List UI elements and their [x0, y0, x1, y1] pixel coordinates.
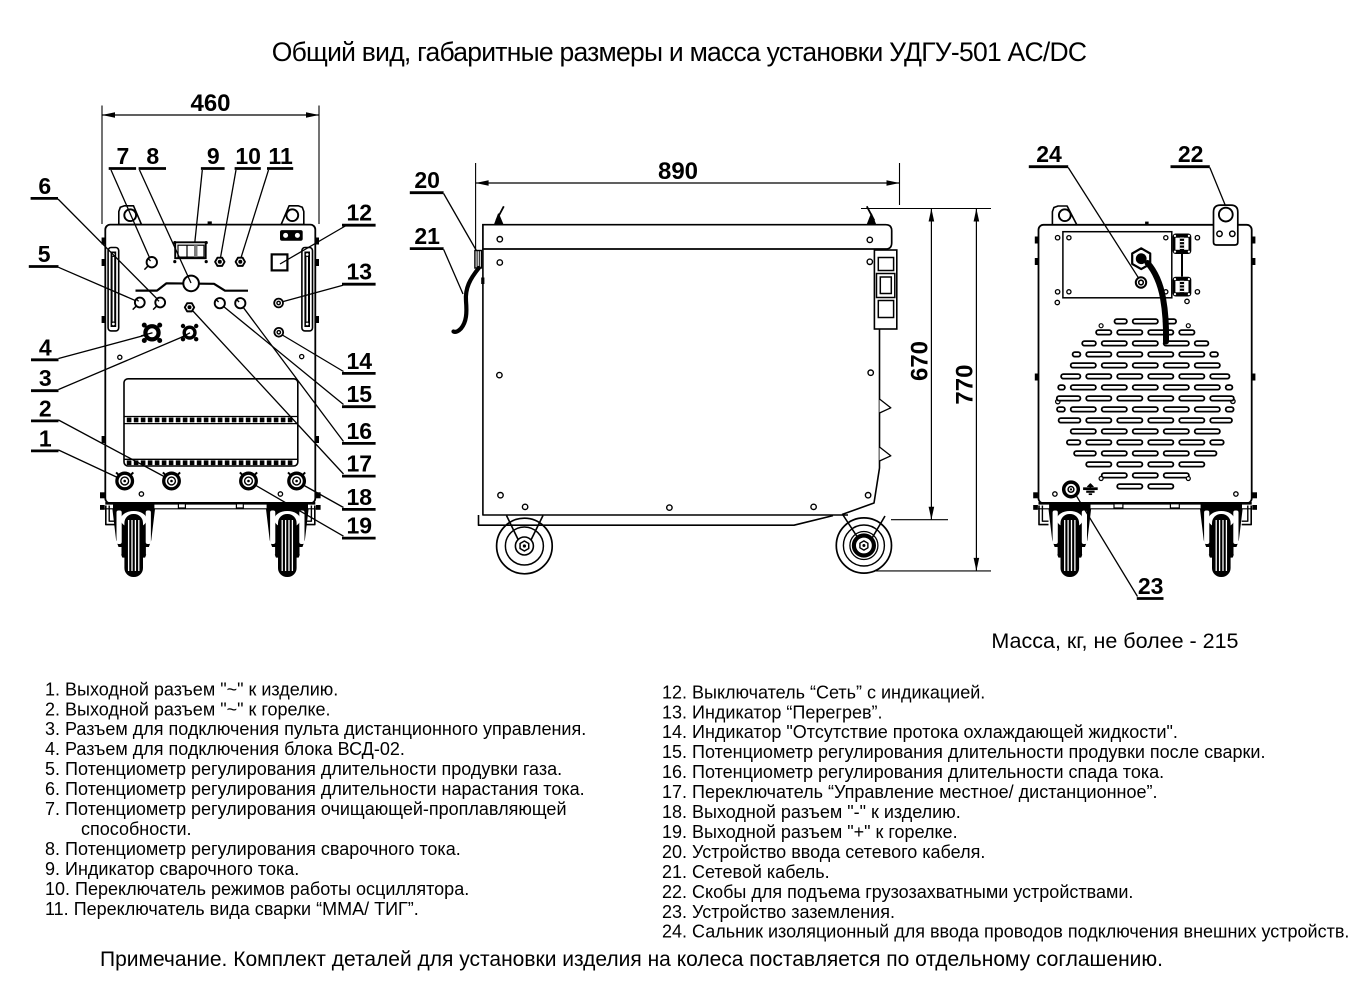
svg-text:16: 16: [347, 418, 373, 444]
svg-text:12: 12: [347, 200, 373, 226]
svg-text:16. Потенциометр регулирования: 16. Потенциометр регулирования длительно…: [662, 762, 1164, 782]
svg-text:способности.: способности.: [81, 819, 192, 839]
svg-text:20. Устройство ввода сетевого: 20. Устройство ввода сетевого кабеля.: [662, 842, 985, 862]
svg-text:12. Выключатель “Сеть” с индик: 12. Выключатель “Сеть” с индикацией.: [662, 682, 985, 702]
svg-text:5. Потенциометр регулирования: 5. Потенциометр регулирования длительнос…: [45, 759, 562, 779]
svg-text:8. Потенциометр регулирования: 8. Потенциометр регулирования сварочного…: [45, 839, 461, 859]
svg-text:1. Выходной разъем "~" к издел: 1. Выходной разъем "~" к изделию.: [45, 679, 338, 699]
svg-text:3. Разъем для подключения пуль: 3. Разъем для подключения пульта дистанц…: [45, 719, 586, 739]
svg-text:13: 13: [347, 259, 373, 285]
svg-text:10: 10: [235, 143, 261, 169]
svg-text:Примечание. Комплект деталей д: Примечание. Комплект деталей для установ…: [100, 948, 1163, 971]
svg-text:21. Сетевой кабель.: 21. Сетевой кабель.: [662, 862, 830, 882]
svg-text:15: 15: [347, 381, 373, 407]
svg-text:20: 20: [414, 167, 440, 193]
svg-text:5: 5: [38, 241, 51, 267]
svg-text:Общий вид, габаритные размеры: Общий вид, габаритные размеры и масса ус…: [272, 37, 1087, 67]
svg-text:670: 670: [907, 341, 934, 381]
svg-text:8: 8: [146, 143, 159, 169]
svg-text:2. Выходной разъем "~" к горел: 2. Выходной разъем "~" к горелке.: [45, 699, 331, 719]
svg-text:6: 6: [38, 173, 51, 199]
svg-text:24. Сальник изоляционный для в: 24. Сальник изоляционный для ввода прово…: [662, 922, 1349, 942]
svg-text:11. Переключатель вида сварки: 11. Переключатель вида сварки “ММА/ ТИГ”…: [45, 899, 419, 919]
svg-text:17: 17: [347, 451, 373, 477]
svg-text:2: 2: [39, 395, 52, 421]
svg-text:19: 19: [347, 513, 373, 539]
svg-text:3: 3: [39, 365, 52, 391]
svg-text:4. Разъем для подключения блок: 4. Разъем для подключения блока ВСД-02.: [45, 739, 405, 759]
svg-text:23. Устройство заземления.: 23. Устройство заземления.: [662, 902, 895, 922]
svg-text:1: 1: [39, 425, 52, 451]
svg-text:15. Потенциометр регулирования: 15. Потенциометр регулирования длительно…: [662, 742, 1265, 762]
svg-text:9. Индикатор сварочного тока.: 9. Индикатор сварочного тока.: [45, 859, 299, 879]
svg-text:9: 9: [207, 143, 220, 169]
svg-text:22: 22: [1178, 141, 1204, 167]
svg-text:4: 4: [39, 334, 52, 360]
svg-text:Масса, кг, не более - 215: Масса, кг, не более - 215: [991, 629, 1238, 653]
svg-text:770: 770: [952, 365, 979, 405]
svg-text:23: 23: [1138, 573, 1164, 599]
svg-text:14: 14: [347, 348, 373, 374]
svg-text:24: 24: [1036, 141, 1062, 167]
svg-text:22. Скобы для подъема грузозах: 22. Скобы для подъема грузозахватными ус…: [662, 882, 1133, 902]
svg-text:11: 11: [268, 143, 293, 169]
svg-text:7: 7: [117, 143, 130, 169]
svg-text:17. Переключатель “Управление: 17. Переключатель “Управление местное/ д…: [662, 782, 1157, 802]
svg-text:7. Потенциометр регулирования: 7. Потенциометр регулирования очищающей-…: [45, 799, 567, 819]
svg-text:460: 460: [190, 90, 230, 117]
svg-text:21: 21: [414, 223, 440, 249]
svg-text:19. Выходной разъем "+" к горе: 19. Выходной разъем "+" к горелке.: [662, 822, 958, 842]
svg-text:10. Переключатель режимов рабо: 10. Переключатель режимов работы осцилля…: [45, 879, 469, 899]
svg-text:18: 18: [347, 484, 373, 510]
svg-text:6. Потенциометр регулирования: 6. Потенциометр регулирования длительнос…: [45, 779, 585, 799]
svg-text:14. Индикатор "Отсутствие прот: 14. Индикатор "Отсутствие протока охлажд…: [662, 722, 1178, 742]
svg-text:18. Выходной разъем "-" к изде: 18. Выходной разъем "-" к изделию.: [662, 802, 961, 822]
svg-text:890: 890: [658, 158, 698, 185]
svg-text:13. Индикатор “Перегрев”.: 13. Индикатор “Перегрев”.: [662, 702, 883, 722]
